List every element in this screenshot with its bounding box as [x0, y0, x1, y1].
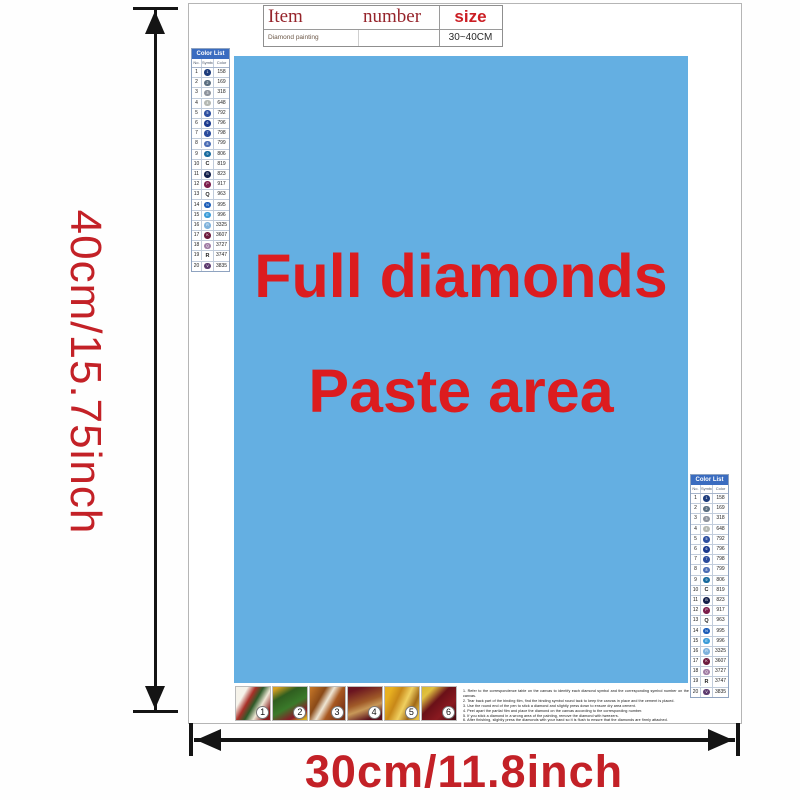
canvas-sheet: Item number size Diamond painting 30~40C… [188, 3, 742, 724]
color-dot-icon: 3 [204, 90, 211, 97]
color-dot-icon: Q [204, 243, 211, 250]
color-row-code: 158 [214, 68, 229, 77]
color-dot-icon: V [204, 263, 211, 270]
color-row-code: 3727 [214, 241, 229, 250]
color-row-code: 806 [713, 576, 728, 585]
color-list-row: 66796 [192, 119, 229, 129]
item-info-table: Item number size Diamond painting 30~40C… [263, 5, 503, 47]
color-list-row: 19R3747 [691, 677, 728, 687]
color-row-symbol: 9 [202, 150, 214, 159]
color-list-row: 18Q3727 [192, 241, 229, 251]
color-row-symbol: 8 [202, 139, 214, 148]
color-list-row: 15E996 [691, 637, 728, 647]
color-row-code: 796 [713, 545, 728, 554]
color-dot-icon: R [703, 648, 710, 655]
color-list-row: 16R3325 [192, 221, 229, 231]
size-value-cell: 30~40CM [439, 30, 501, 46]
color-row-number: 7 [691, 555, 701, 564]
color-list-row: 66796 [691, 545, 728, 555]
color-dot-icon: 8 [204, 141, 211, 148]
color-list-row: 12P917 [691, 606, 728, 616]
color-row-code: 169 [214, 78, 229, 87]
step-thumbnail-1: 1 [235, 686, 271, 721]
col-color: Color [214, 59, 229, 67]
color-row-number: 13 [691, 616, 701, 625]
color-list-row: 10C819 [192, 160, 229, 170]
color-dot-icon: 9 [204, 151, 211, 158]
color-row-number: 12 [691, 606, 701, 615]
color-list-row: 15E996 [192, 211, 229, 221]
color-list-row: 19R3747 [192, 251, 229, 261]
color-row-number: 18 [691, 667, 701, 676]
step-number-badge: 1 [256, 706, 269, 719]
col-symbol: Symbol [701, 485, 713, 493]
step-number-badge: 2 [293, 706, 306, 719]
col-symbol: Symbol [202, 59, 214, 67]
color-row-number: 4 [192, 99, 202, 108]
color-row-symbol: K [701, 657, 713, 666]
color-list-row: 14N995 [691, 626, 728, 636]
symbol-letter: R [206, 253, 210, 259]
color-row-number: 15 [691, 637, 701, 646]
color-row-number: 12 [192, 180, 202, 189]
color-dot-icon: 3 [703, 516, 710, 523]
arrowhead-up-icon [145, 11, 165, 34]
color-row-symbol: B [202, 170, 214, 179]
color-row-symbol: 1 [701, 494, 713, 503]
color-row-symbol: 3 [701, 514, 713, 523]
color-row-symbol: V [701, 688, 713, 697]
color-list-title: Color List [192, 49, 229, 59]
instruction-line: 1. Refer to the correspondence table on … [463, 689, 689, 699]
color-row-symbol: K [202, 231, 214, 240]
color-row-symbol: R [202, 221, 214, 230]
color-dot-icon: 7 [204, 130, 211, 137]
number-header-cell: number [359, 6, 439, 29]
color-row-number: 18 [192, 241, 202, 250]
color-row-code: 819 [713, 586, 728, 595]
color-list-row: 44648 [192, 99, 229, 109]
color-dot-icon: R [204, 222, 211, 229]
color-list-row: 13Q963 [691, 616, 728, 626]
step-number-badge: 5 [405, 706, 418, 719]
color-row-code: 798 [214, 129, 229, 138]
color-row-symbol: 2 [202, 78, 214, 87]
color-list-row: 99806 [691, 576, 728, 586]
color-list-left: Color List No. Symbol Color 111582216933… [191, 48, 230, 272]
color-row-symbol: Q [202, 241, 214, 250]
color-row-symbol: 6 [701, 545, 713, 554]
color-row-code: 3835 [713, 688, 728, 697]
color-list-rows: 1115822169333184464855792667967779888799… [691, 494, 728, 697]
step-thumbnail-4: 4 [347, 686, 383, 721]
symbol-letter: Q [205, 192, 209, 198]
step-thumbnail-3: 3 [309, 686, 345, 721]
color-dot-icon: 6 [703, 546, 710, 553]
size-header-cell: size [439, 6, 501, 29]
color-row-symbol: P [202, 180, 214, 189]
color-list-row: 11158 [192, 68, 229, 78]
color-list-row: 55792 [192, 109, 229, 119]
color-row-symbol: 9 [701, 576, 713, 585]
color-row-code: 823 [214, 170, 229, 179]
color-row-code: 963 [214, 190, 229, 199]
color-list-row: 33318 [192, 88, 229, 98]
color-list-row: 99806 [192, 150, 229, 160]
color-dot-icon: E [204, 212, 211, 219]
color-row-symbol: Q [202, 190, 214, 199]
color-list-columns: No. Symbol Color [691, 485, 728, 494]
instruction-line: 2. Tear back part of the binding film, f… [463, 699, 689, 704]
color-row-symbol: E [701, 637, 713, 646]
color-row-number: 15 [192, 211, 202, 220]
color-row-number: 7 [192, 129, 202, 138]
color-row-code: 169 [713, 504, 728, 513]
color-row-number: 6 [691, 545, 701, 554]
color-list-rows: 1115822169333184464855792667967779888799… [192, 68, 229, 271]
color-row-symbol: R [701, 677, 713, 686]
color-list-row: 88799 [691, 565, 728, 575]
color-row-code: 3607 [214, 231, 229, 240]
color-dot-icon: 2 [703, 506, 710, 513]
color-dot-icon: Q [703, 669, 710, 676]
color-dot-icon: 5 [703, 536, 710, 543]
color-list-columns: No. Symbol Color [192, 59, 229, 68]
color-row-symbol: V [202, 262, 214, 271]
color-row-number: 10 [691, 586, 701, 595]
col-color: Color [713, 485, 728, 493]
color-dot-icon: 1 [703, 495, 710, 502]
color-row-code: 963 [713, 616, 728, 625]
color-row-symbol: P [701, 606, 713, 615]
color-row-number: 13 [192, 190, 202, 199]
color-row-symbol: 8 [701, 565, 713, 574]
color-row-symbol: 4 [701, 525, 713, 534]
color-list-row: 14N995 [192, 200, 229, 210]
color-row-symbol: 3 [202, 88, 214, 97]
step-number-badge: 4 [368, 706, 381, 719]
color-row-symbol: C [202, 160, 214, 169]
arrow-shaft-horizontal [194, 738, 735, 742]
color-list-row: 77798 [192, 129, 229, 139]
instruction-line: 6. After finishing, slightly press the d… [463, 718, 689, 723]
color-row-code: 799 [713, 565, 728, 574]
color-row-number: 5 [691, 535, 701, 544]
color-row-code: 158 [713, 494, 728, 503]
color-dot-icon: P [204, 181, 211, 188]
symbol-letter: C [705, 587, 709, 593]
color-row-code: 996 [713, 637, 728, 646]
color-row-symbol: 6 [202, 119, 214, 128]
color-row-number: 20 [691, 688, 701, 697]
color-list-row: 20V3835 [691, 688, 728, 697]
color-row-number: 11 [691, 596, 701, 605]
color-dot-icon: P [703, 607, 710, 614]
step-thumbnails: 1 2 3 4 5 6 [235, 686, 457, 721]
color-row-symbol: N [701, 626, 713, 635]
instruction-text-block: 1. Refer to the correspondence table on … [463, 689, 689, 723]
color-row-symbol: 5 [202, 109, 214, 118]
symbol-letter: Q [704, 618, 708, 624]
paste-area-title-line2: Paste area [234, 356, 688, 426]
height-dimension-label: 40cm/15.75inch [60, 210, 110, 535]
color-row-number: 2 [192, 78, 202, 87]
color-row-symbol: Q [701, 667, 713, 676]
color-row-symbol: 5 [701, 535, 713, 544]
color-row-number: 14 [192, 201, 202, 210]
color-list-title: Color List [691, 475, 728, 485]
color-row-code: 798 [713, 555, 728, 564]
color-list-row: 17K3607 [691, 657, 728, 667]
symbol-letter: C [206, 161, 210, 167]
color-list-row: 11B823 [192, 170, 229, 180]
color-row-code: 806 [214, 150, 229, 159]
color-row-code: 3325 [214, 221, 229, 230]
color-row-number: 6 [192, 119, 202, 128]
width-dimension-label: 30cm/11.8inch [188, 746, 740, 798]
color-row-number: 3 [691, 514, 701, 523]
color-dot-icon: 6 [204, 120, 211, 127]
color-row-code: 3727 [713, 667, 728, 676]
color-dot-icon: 4 [703, 526, 710, 533]
item-table-value-row: Diamond painting 30~40CM [264, 30, 502, 46]
color-row-code: 648 [713, 525, 728, 534]
color-row-code: 917 [214, 180, 229, 189]
color-row-symbol: 4 [202, 99, 214, 108]
color-row-symbol: 2 [701, 504, 713, 513]
color-row-symbol: Q [701, 616, 713, 625]
color-row-symbol: 7 [202, 129, 214, 138]
color-list-row: 44648 [691, 525, 728, 535]
color-row-number: 9 [192, 150, 202, 159]
col-no: No. [192, 59, 202, 67]
color-list-row: 22169 [192, 78, 229, 88]
color-dot-icon: B [703, 597, 710, 604]
item-value-cell: Diamond painting [264, 30, 359, 46]
color-row-code: 3607 [713, 657, 728, 666]
color-row-code: 799 [214, 139, 229, 148]
color-dot-icon: 4 [204, 100, 211, 107]
color-list-row: 17K3607 [192, 231, 229, 241]
col-no: No. [691, 485, 701, 493]
color-row-number: 14 [691, 627, 701, 636]
color-row-number: 17 [192, 231, 202, 240]
color-dot-icon: 5 [204, 110, 211, 117]
color-dot-icon: 9 [703, 577, 710, 584]
color-row-code: 823 [713, 596, 728, 605]
color-row-symbol: N [202, 200, 214, 209]
color-dot-icon: N [703, 628, 710, 635]
step-number-badge: 3 [331, 706, 344, 719]
color-row-number: 1 [691, 494, 701, 503]
color-row-number: 19 [691, 677, 701, 686]
color-row-number: 4 [691, 525, 701, 534]
color-dot-icon: 1 [204, 69, 211, 76]
color-row-code: 3325 [713, 647, 728, 656]
color-list-row: 33318 [691, 514, 728, 524]
color-list-row: 16R3325 [691, 647, 728, 657]
color-row-symbol: R [202, 251, 214, 260]
product-diagram: 40cm/15.75inch Item number size Diamond … [0, 0, 800, 800]
color-dot-icon: 7 [703, 556, 710, 563]
color-list-row: 22169 [691, 504, 728, 514]
color-row-code: 3747 [713, 677, 728, 686]
color-list-row: 18Q3727 [691, 667, 728, 677]
color-list-row: 13Q963 [192, 190, 229, 200]
color-row-number: 8 [691, 565, 701, 574]
color-row-code: 819 [214, 160, 229, 169]
paste-area: Full diamonds Paste area [234, 56, 688, 683]
color-dot-icon: E [703, 638, 710, 645]
color-list-row: 88799 [192, 139, 229, 149]
color-row-symbol: E [202, 211, 214, 220]
color-row-number: 16 [691, 647, 701, 656]
symbol-letter: R [705, 679, 709, 685]
color-row-number: 9 [691, 576, 701, 585]
color-row-code: 796 [214, 119, 229, 128]
color-row-number: 19 [192, 251, 202, 260]
color-row-number: 17 [691, 657, 701, 666]
color-dot-icon: 8 [703, 567, 710, 574]
color-row-code: 3835 [214, 262, 229, 271]
color-row-number: 5 [192, 109, 202, 118]
color-row-number: 8 [192, 139, 202, 148]
color-row-number: 11 [192, 170, 202, 179]
arrow-shaft-vertical [154, 10, 157, 710]
color-row-code: 995 [713, 627, 728, 636]
color-dot-icon: 2 [204, 80, 211, 87]
step-thumbnail-2: 2 [272, 686, 308, 721]
color-row-code: 648 [214, 99, 229, 108]
color-row-code: 917 [713, 606, 728, 615]
color-row-number: 10 [192, 160, 202, 169]
step-number-badge: 6 [442, 706, 455, 719]
color-list-row: 12P917 [192, 180, 229, 190]
arrow-bottom-cap [133, 710, 178, 713]
color-row-symbol: C [701, 586, 713, 595]
color-row-number: 20 [192, 262, 202, 271]
color-row-symbol: 1 [202, 68, 214, 77]
color-row-number: 2 [691, 504, 701, 513]
color-list-row: 77798 [691, 555, 728, 565]
color-dot-icon: K [204, 232, 211, 239]
color-row-symbol: 7 [701, 555, 713, 564]
color-row-number: 16 [192, 221, 202, 230]
color-row-code: 996 [214, 211, 229, 220]
step-thumbnail-5: 5 [384, 686, 420, 721]
color-row-code: 995 [214, 201, 229, 210]
color-row-symbol: B [701, 596, 713, 605]
color-row-code: 792 [214, 109, 229, 118]
color-row-number: 1 [192, 68, 202, 77]
arrowhead-down-icon [145, 686, 165, 709]
color-dot-icon: N [204, 202, 211, 209]
paste-area-title-line1: Full diamonds [234, 241, 688, 311]
color-row-code: 318 [713, 514, 728, 523]
color-dot-icon: K [703, 658, 710, 665]
item-header-cell: Item [264, 6, 359, 29]
number-value-cell [359, 30, 439, 46]
step-thumbnail-6: 6 [421, 686, 457, 721]
color-row-code: 3747 [214, 251, 229, 260]
color-list-right: Color List No. Symbol Color 111582216933… [690, 474, 729, 698]
color-dot-icon: V [703, 689, 710, 696]
color-dot-icon: B [204, 171, 211, 178]
color-row-code: 318 [214, 88, 229, 97]
color-row-number: 3 [192, 88, 202, 97]
color-list-row: 11158 [691, 494, 728, 504]
color-list-row: 20V3835 [192, 262, 229, 271]
color-list-row: 10C819 [691, 586, 728, 596]
color-list-row: 55792 [691, 535, 728, 545]
color-list-row: 11B823 [691, 596, 728, 606]
color-row-code: 792 [713, 535, 728, 544]
color-row-symbol: R [701, 647, 713, 656]
item-table-header-row: Item number size [264, 6, 502, 30]
